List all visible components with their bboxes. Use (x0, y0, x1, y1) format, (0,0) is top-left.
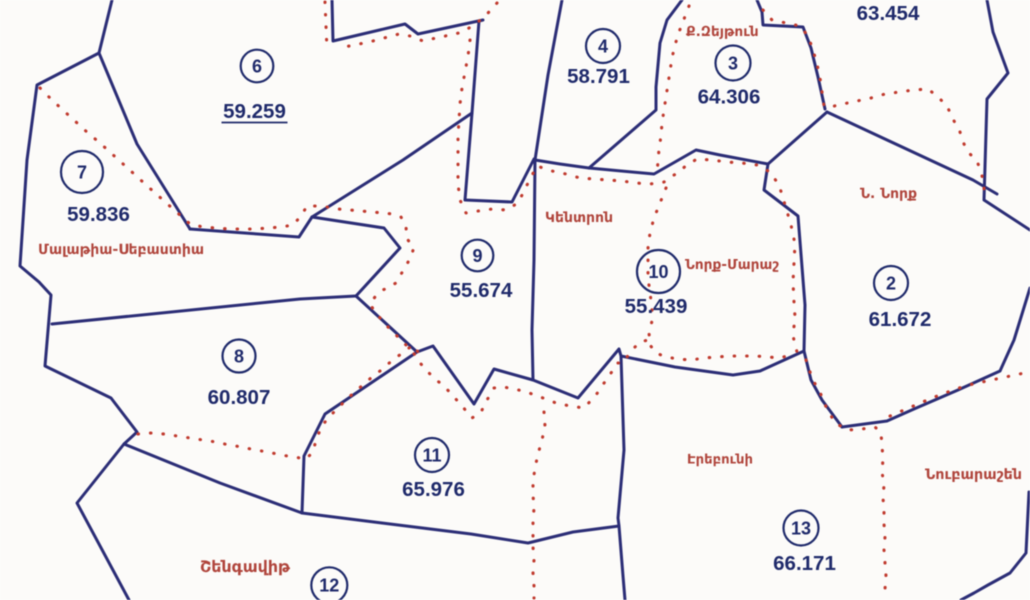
svg-text:2: 2 (886, 273, 896, 293)
svg-text:55.674: 55.674 (450, 279, 513, 302)
svg-text:8: 8 (234, 346, 244, 366)
svg-text:9: 9 (472, 246, 482, 266)
svg-text:10: 10 (648, 262, 668, 282)
svg-text:64.306: 64.306 (698, 86, 761, 109)
svg-text:11: 11 (422, 445, 441, 465)
svg-text:55.439: 55.439 (625, 295, 688, 318)
svg-text:6: 6 (252, 56, 262, 76)
svg-text:59.836: 59.836 (67, 203, 130, 226)
svg-text:58.791: 58.791 (567, 65, 630, 88)
svg-text:65.976: 65.976 (402, 478, 465, 501)
svg-text:60.807: 60.807 (208, 386, 271, 409)
svg-text:7: 7 (77, 162, 87, 182)
svg-text:4: 4 (598, 36, 608, 56)
svg-text:61.672: 61.672 (869, 308, 932, 331)
svg-text:63.454: 63.454 (857, 2, 920, 25)
svg-text:59.259: 59.259 (223, 100, 286, 123)
svg-text:13: 13 (791, 518, 811, 538)
svg-text:3: 3 (728, 53, 738, 73)
svg-text:66.171: 66.171 (773, 552, 836, 575)
svg-text:12: 12 (319, 576, 339, 596)
